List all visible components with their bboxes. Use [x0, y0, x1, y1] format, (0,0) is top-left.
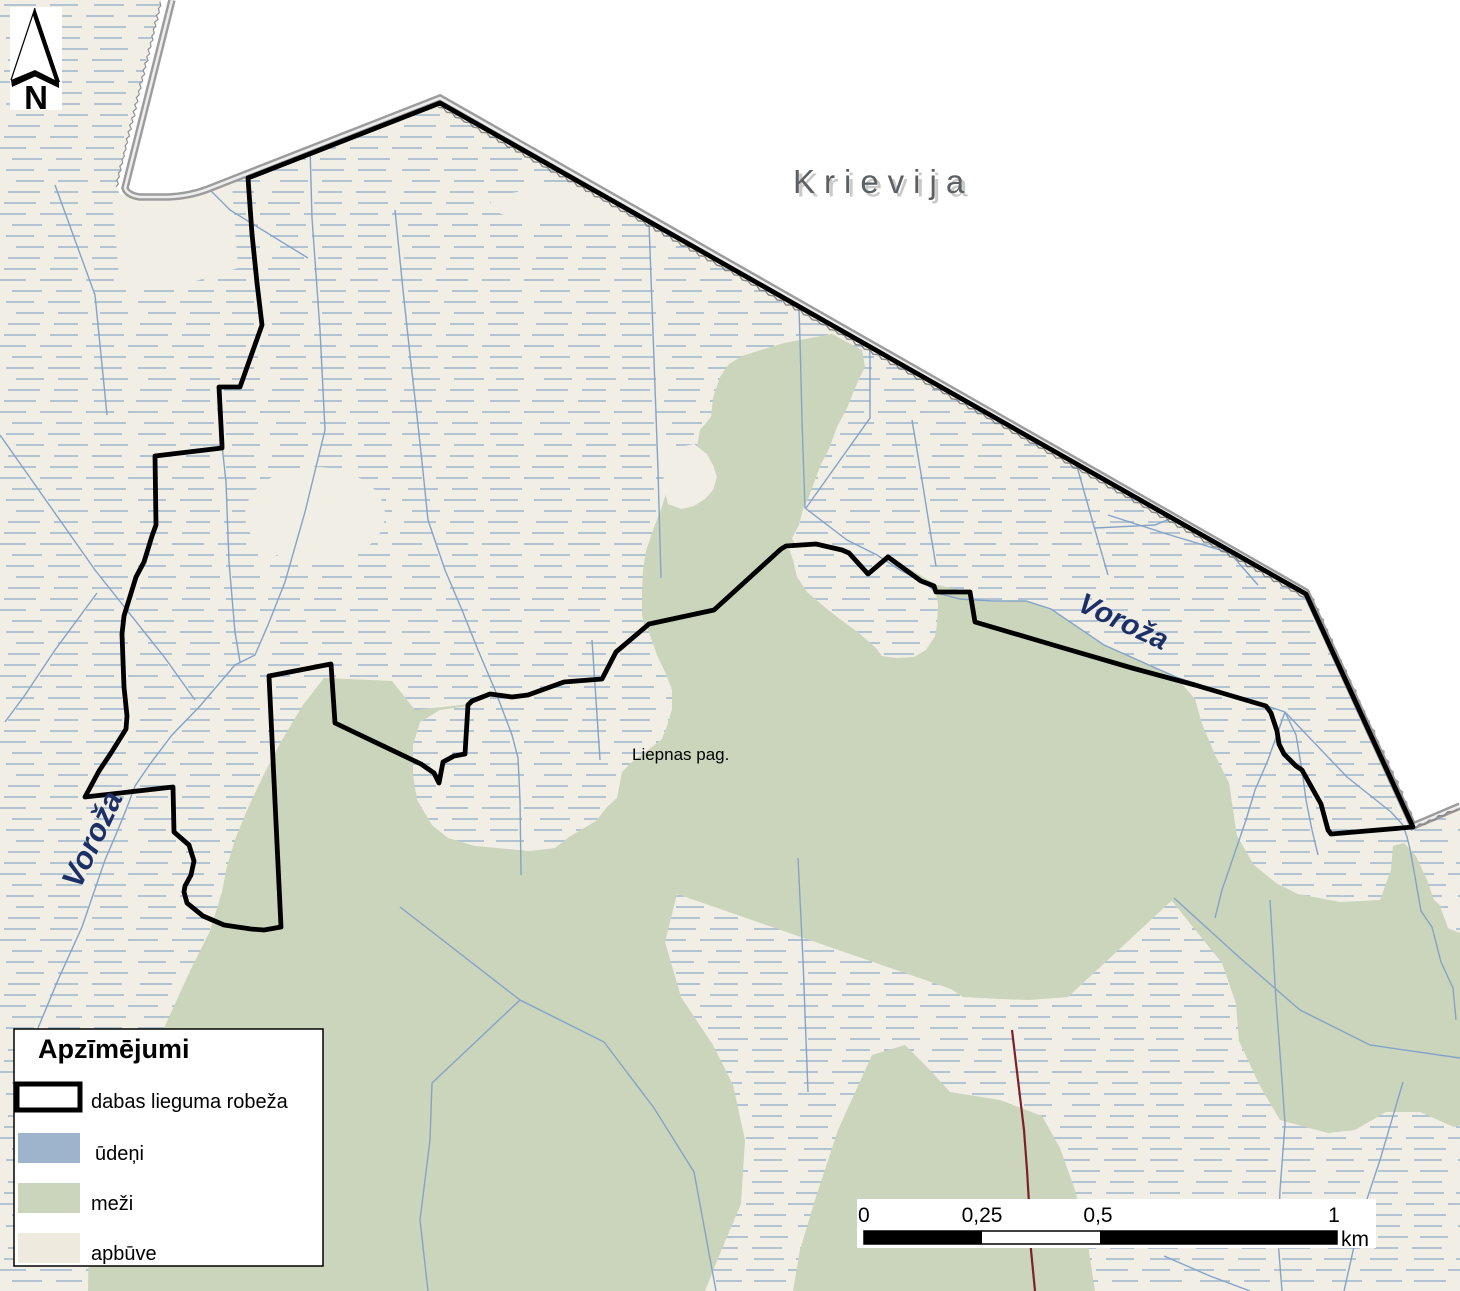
svg-text:0: 0 — [858, 1204, 870, 1227]
svg-text:apbūve: apbūve — [91, 1243, 157, 1265]
svg-text:dabas lieguma robeža: dabas lieguma robeža — [91, 1091, 289, 1113]
svg-text:0,25: 0,25 — [962, 1204, 1003, 1227]
svg-text:meži: meži — [91, 1193, 133, 1215]
svg-text:km: km — [1341, 1228, 1369, 1251]
svg-text:Liepnas pag.: Liepnas pag. — [632, 745, 729, 764]
svg-text:0,5: 0,5 — [1083, 1204, 1112, 1227]
svg-text:N: N — [24, 79, 48, 116]
svg-text:Apzīmējumi: Apzīmējumi — [38, 1034, 190, 1064]
svg-text:Krievija: Krievija — [793, 163, 973, 200]
svg-text:1: 1 — [1328, 1204, 1340, 1227]
svg-text:ūdeņi: ūdeņi — [95, 1143, 144, 1165]
